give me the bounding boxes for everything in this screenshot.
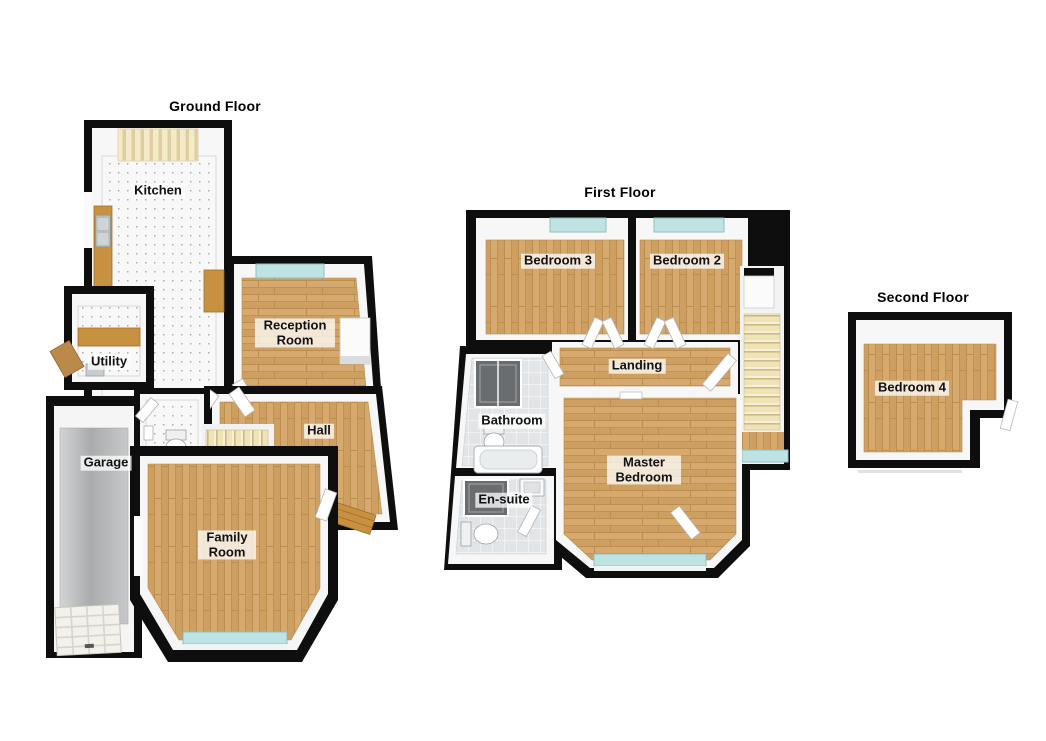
first-floor-stairs [740,266,788,464]
room-label-bathroom: Bathroom [478,414,545,429]
kitchen-window-blinds [118,129,198,161]
floorplan-drawing [0,0,1046,741]
family-bay-window [183,632,287,650]
kitchen-unit [204,270,224,312]
bathroom-shower [475,360,521,407]
reception-chimney [340,318,370,364]
ensuite-toilet [461,522,498,546]
room-label-master: Master Bedroom [607,455,681,484]
room-label-bedroom3: Bedroom 3 [521,254,595,269]
family-side-window [134,516,143,576]
room-label-utility: Utility [88,355,130,370]
master-doorway [620,392,642,399]
floor-title-first: First Floor [584,184,655,200]
bedroom2-window [654,218,724,232]
utility-counter [78,328,140,346]
room-ensuite [448,476,554,564]
bathroom-bath [474,446,542,473]
room-label-ensuite: En-suite [475,493,532,508]
room-label-bedroom4: Bedroom 4 [875,381,949,396]
room-label-garage: Garage [81,456,132,471]
room-utility [50,286,154,390]
stairs-window [742,450,788,462]
master-bay-window [594,554,706,571]
floor-title-second: Second Floor [877,289,969,305]
garage-door [55,604,121,655]
room-garage [46,396,142,658]
room-bedroom2 [636,210,748,340]
room-label-bedroom2: Bedroom 2 [650,254,724,269]
room-label-hall: Hall [304,424,334,439]
ground-floor-plan [46,120,398,662]
first-floor-plan [444,210,790,578]
reception-window [256,264,324,278]
kitchen-side-window [84,192,92,248]
floor-title-ground: Ground Floor [169,98,261,114]
floor-shadow [858,470,962,473]
room-label-kitchen: Kitchen [131,184,185,199]
bedroom3-window [550,218,606,232]
room-label-landing: Landing [609,359,666,374]
floorplan-image: Ground Floor First Floor Second Floor Ki… [0,0,1046,741]
stairs-cupboard [744,276,774,308]
room-label-family: Family Room [198,530,256,559]
wc-basin [144,426,153,440]
room-label-reception: Reception Room [255,318,335,347]
kitchen-sink [96,215,111,247]
